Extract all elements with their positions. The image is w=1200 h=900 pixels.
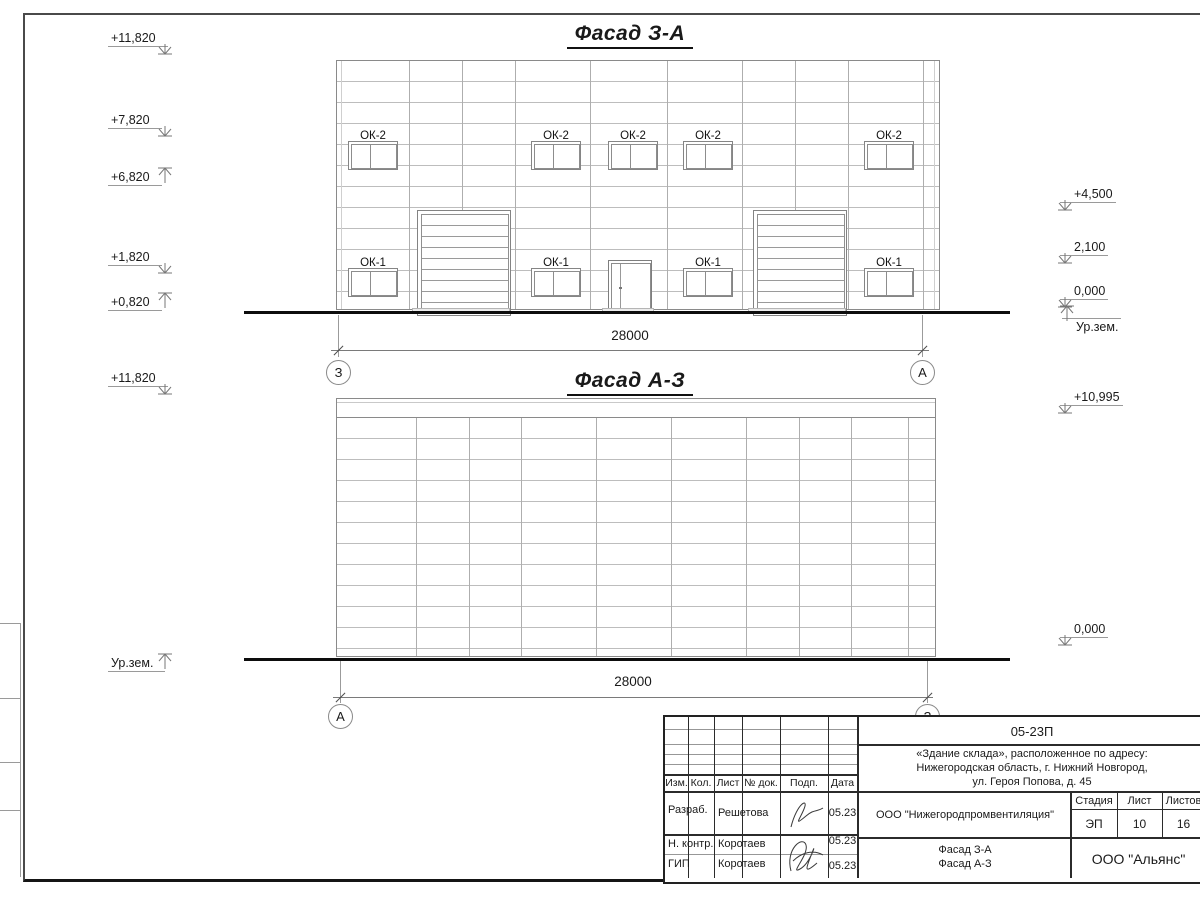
tb-name: Коротаев	[718, 856, 780, 872]
tb-col-header: Подп.	[780, 775, 828, 791]
elevation-mark: +6,820	[108, 168, 170, 184]
margin-box-line	[0, 762, 21, 763]
column-line	[923, 61, 924, 309]
window-panes	[686, 144, 732, 169]
window-ok1: ОК-1	[864, 268, 914, 297]
tb-sheet-name: Фасад З-А	[861, 843, 1069, 857]
elevation-mark: +0,820	[108, 293, 170, 309]
window-panes	[867, 144, 913, 169]
elevation-mark: 0,000	[1060, 282, 1126, 298]
window-label: ОК-1	[543, 257, 569, 269]
tb-sheet-name: Фасад А-З	[861, 857, 1069, 871]
level-arrow-up-icon	[157, 651, 173, 669]
level-arrow-down-icon	[157, 263, 173, 276]
facade2-building	[336, 417, 936, 657]
entrance-door	[608, 260, 652, 313]
level-arrow-down-icon	[157, 126, 173, 139]
level-arrow-up-icon	[157, 165, 173, 183]
tb-company: ООО "Альянс"	[1072, 839, 1200, 878]
window-ok1: ОК-1	[683, 268, 733, 297]
column-line	[515, 61, 516, 309]
column-line	[590, 61, 591, 309]
column-line	[671, 418, 672, 656]
axis-circle: З	[326, 360, 351, 385]
column-line	[416, 418, 417, 656]
column-line	[848, 61, 849, 309]
title-block: Изм. Кол. Лист № док. Подп. Дата Разраб.…	[663, 715, 1200, 884]
elevation-mark: 2,100	[1060, 238, 1126, 254]
gate-slats	[421, 214, 509, 314]
column-line	[596, 418, 597, 656]
level-arrow-up-icon	[157, 290, 173, 308]
tb-name: Коротаев	[718, 836, 780, 852]
axis-circle: А	[328, 704, 353, 729]
window-label: ОК-2	[876, 130, 902, 142]
tb-stage-value: 16	[1162, 813, 1200, 835]
tb-date: 05.23	[828, 833, 857, 849]
column-line	[742, 61, 743, 309]
window-ok2: ОК-2	[348, 141, 398, 170]
tb-stage-header: Листов	[1162, 793, 1200, 809]
window-panes	[534, 144, 580, 169]
axis-circle: А	[910, 360, 935, 385]
window-panes	[867, 271, 913, 296]
level-arrow-down-icon	[1057, 253, 1073, 266]
tb-col-header: Лист	[714, 775, 742, 791]
window-panes	[534, 271, 580, 296]
dimension-line	[331, 350, 929, 351]
window-ok2: ОК-2	[864, 141, 914, 170]
tb-line	[688, 717, 689, 878]
wall-edge-line	[341, 61, 342, 309]
window-panes	[686, 271, 732, 296]
ground-level-mark: Ур.зем.	[108, 654, 170, 670]
tb-name: Решетова	[718, 805, 780, 821]
door-handle	[619, 287, 622, 289]
column-line	[521, 418, 522, 656]
sectional-gate-right	[753, 210, 847, 316]
ground-line	[244, 311, 1010, 314]
facade2-parapet-band	[336, 398, 936, 418]
door-leafs	[611, 263, 651, 312]
tb-col-header: Изм.	[665, 775, 688, 791]
tb-stage-header: Лист	[1117, 793, 1162, 809]
tb-object-line: ул. Героя Попова, д. 45	[865, 775, 1199, 788]
window-label: ОК-2	[360, 130, 386, 142]
window-ok1: ОК-1	[531, 268, 581, 297]
window-panes	[351, 144, 397, 169]
level-arrow-down-icon	[1057, 635, 1073, 648]
tb-role: Н. контр.	[668, 836, 720, 852]
elevation-mark: +1,820	[108, 248, 170, 264]
tb-line	[859, 744, 1200, 746]
level-arrow-down-icon	[1057, 403, 1073, 416]
column-line	[746, 418, 747, 656]
gate-slats	[757, 214, 845, 314]
window-ok2: ОК-2	[608, 141, 658, 170]
dimension-line	[333, 697, 933, 698]
window-label: ОК-2	[695, 130, 721, 142]
tb-stage-header: Стадия	[1071, 793, 1117, 809]
ground-line	[244, 658, 1010, 661]
signature	[783, 795, 827, 833]
margin-box-line	[0, 810, 21, 811]
level-arrow-up-icon	[1059, 303, 1075, 321]
elevation-mark: +11,820	[108, 29, 170, 45]
window-ok2: ОК-2	[683, 141, 733, 170]
dimension-text: 28000	[573, 674, 693, 689]
tb-role: ГИП	[668, 856, 715, 872]
sectional-gate-left	[417, 210, 511, 316]
window-ok1: ОК-1	[348, 268, 398, 297]
tb-stage-value: 10	[1117, 813, 1162, 835]
column-line	[908, 418, 909, 656]
tb-date: 05.23	[828, 805, 857, 821]
column-line	[667, 61, 668, 309]
drawing-sheet: Фасад З-А 28000 З А +11,820 +7,820 +6,82…	[0, 0, 1200, 900]
dimension-text: 28000	[570, 328, 690, 343]
elevation-mark: +11,820	[108, 369, 170, 385]
column-line	[799, 418, 800, 656]
tb-designer: ООО "Нижегородпромвентиляция"	[861, 794, 1069, 836]
tb-doc-code: 05-23П	[859, 719, 1200, 743]
facade1-title: Фасад З-А	[480, 22, 780, 49]
window-panes	[351, 271, 397, 296]
axis-letter: З	[335, 365, 343, 380]
window-label: ОК-2	[620, 130, 646, 142]
axis-letter: А	[336, 709, 345, 724]
window-label: ОК-1	[695, 257, 721, 269]
elevation-mark: +10,995	[1060, 388, 1130, 404]
level-arrow-down-icon	[157, 384, 173, 397]
window-label: ОК-2	[543, 130, 569, 142]
tb-line	[1070, 809, 1200, 810]
tb-stage-value: ЭП	[1071, 813, 1117, 835]
level-arrow-down-icon	[157, 44, 173, 57]
elevation-mark: +7,820	[108, 111, 170, 127]
tb-object-line: Нижегородская область, г. Нижний Новгоро…	[865, 761, 1199, 774]
ground-level-mark: Ур.зем.	[1062, 318, 1128, 334]
tb-line	[742, 717, 743, 878]
tb-col-header: Дата	[828, 775, 857, 791]
tb-col-header: № док.	[742, 775, 780, 791]
axis-letter: А	[918, 365, 927, 380]
column-line	[409, 61, 410, 309]
window-label: ОК-1	[360, 257, 386, 269]
window-label: ОК-1	[876, 257, 902, 269]
elevation-mark: +4,500	[1060, 185, 1126, 201]
tb-role: Разраб.	[668, 802, 715, 818]
facade2-title: Фасад А-З	[480, 369, 780, 396]
elevation-mark: 0,000	[1060, 620, 1126, 636]
window-ok2: ОК-2	[531, 141, 581, 170]
tb-object-line: «Здание склада», расположенное по адресу…	[865, 747, 1199, 760]
tb-date: 05.23	[828, 858, 857, 874]
wall-edge-line	[934, 61, 935, 309]
window-panes	[611, 144, 657, 169]
margin-box-line	[0, 698, 21, 699]
margin-box-line	[0, 623, 21, 624]
tb-line	[714, 717, 715, 878]
column-line	[469, 418, 470, 656]
margin-box-line	[20, 623, 21, 877]
level-arrow-down-icon	[1057, 200, 1073, 213]
signature	[781, 831, 829, 879]
tb-col-header: Кол.	[688, 775, 714, 791]
column-line	[851, 418, 852, 656]
